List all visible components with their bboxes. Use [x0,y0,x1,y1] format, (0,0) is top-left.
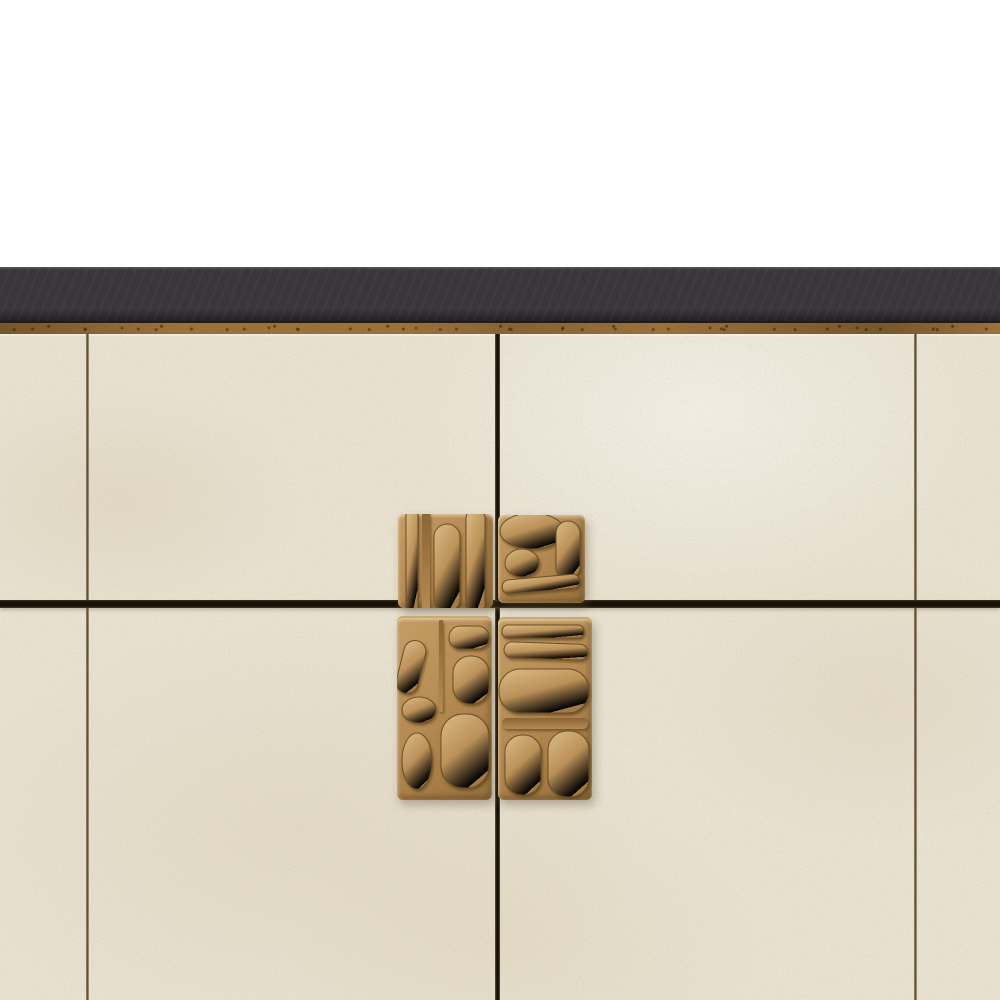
handle-relief-carving [498,515,585,603]
handle-block-bottom-left[interactable] [397,616,492,800]
countertop-slab [0,267,1000,321]
handle-relief-carving [498,619,592,800]
handle-block-bottom-right[interactable] [498,617,592,800]
bronze-trim-strip [0,321,1000,334]
left-vertical-seam [86,334,89,1000]
slab-texture [0,267,1000,321]
handle-block-top-right[interactable] [498,515,585,603]
handle-relief-carving [397,618,492,800]
trim-speckle-texture [0,323,1000,334]
right-vertical-seam [914,334,917,1000]
product-scene [0,0,1000,1000]
handle-block-top-left[interactable] [398,514,493,608]
handle-relief-carving [398,514,493,608]
